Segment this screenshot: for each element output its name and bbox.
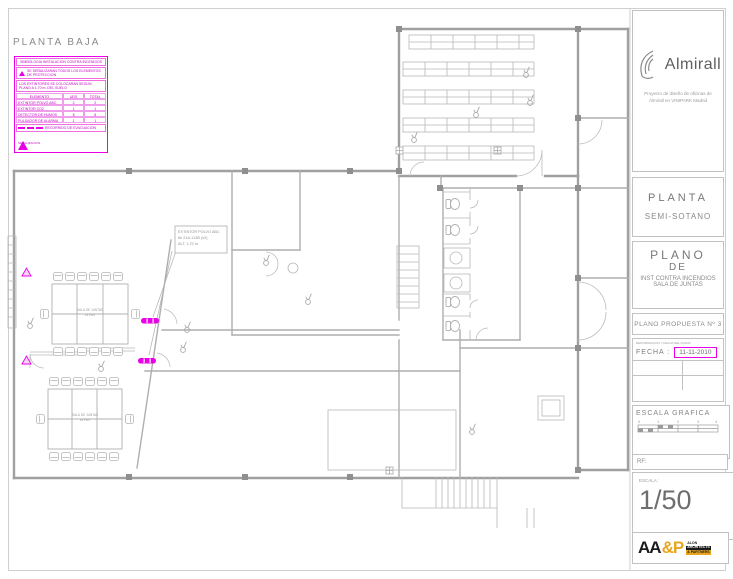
archive-shelving [403,35,534,160]
fecha-value: 11-11-2010 [674,347,716,358]
legend-table: ELEMENTO UDS TOTAL EXTINTOR POLVO ABC 2 … [16,93,106,123]
evacuation-route-row: RECORRIDO DE EVACUACION [16,124,106,132]
callout-line-1: EXTINTOR POLVO ABC [178,230,220,234]
callout-line-3: ALT. 1,70 m [178,242,198,246]
floorplan-drawing: SALA DE JUNTAS 14 PAX SALA DE JUNTAS 14 … [0,0,733,579]
brand-name: Almirall [665,56,721,74]
brand-tagline-1: Proyecto de diseño de oficinas de [633,91,723,98]
drawing-sheet: SALA DE JUNTAS 14 PAX SALA DE JUNTAS 14 … [0,0,733,579]
rf-box: RF: [632,454,728,470]
proposal-box: PLANO PROPUESTA Nº 3 [632,313,724,335]
scale-value: 1/50 [639,485,729,516]
legend-signal-area: SEÑALIZACION [15,133,107,149]
conference-table-1: SALA DE JUNTAS 14 PAX [41,273,140,356]
svg-text:4: 4 [715,419,718,424]
brand-tagline-2: Almirall en VINIPARK Madrid [633,98,723,105]
fecha-label: FECHA : [636,349,670,356]
evac-dash-icon [18,127,25,129]
callout-line-2: 6e 21A-113B (x2) [178,236,208,240]
architecture-firm-logo: AA &P ALON ARCHITECTS & PARTNERS [632,532,729,564]
plano-box: PLANO DE INST CONTRA INCENDIOS SALA DE J… [632,241,724,309]
graphic-scale-label: ESCALA GRAFICA [636,410,726,417]
evac-dash-icon [36,127,43,129]
planta-box: PLANTA SEMI-SOTANO [632,177,724,237]
planta-line2: SEMI-SOTANO [633,212,723,221]
legend-title: SIMBOLOGIA INSTALACION CONTRA INCENDIOS [16,58,106,66]
svg-text:1: 1 [657,419,660,424]
alarm-triangle-markers [22,268,31,364]
table2-sub: 14 PAX [80,418,91,422]
warning-triangle-icon [19,71,25,76]
planta-line1: PLANTA [633,192,723,204]
plano-line2: DE [633,262,723,273]
conference-table-2: SALA DE JUNTAS 14 PAX [37,378,134,461]
firm-logo-p: &P [662,538,684,558]
plano-line4: SALA DE JUNTAS [633,282,723,288]
firm-name-line3: & PARTNERS [686,550,711,555]
svg-text:2: 2 [677,419,680,424]
evac-dash-icon [27,127,34,129]
title-block: Almirall Proyecto de diseño de oficinas … [630,8,726,571]
fecha-grid [633,360,723,390]
table1-sub: 14 PAX [85,313,96,317]
firm-logo-aa: AA [638,538,661,558]
brand-box: Almirall Proyecto de diseño de oficinas … [632,10,724,172]
svg-text:0: 0 [638,419,641,424]
signal-caption: SEÑALIZACION [18,142,104,145]
legend-box: SIMBOLOGIA INSTALACION CONTRA INCENDIOS … [14,56,108,153]
table1-label: SALA DE JUNTAS [77,308,103,312]
svg-text:3: 3 [697,419,700,424]
graphic-scale-box: ESCALA GRAFICA 0 1 2 3 4 [632,405,730,459]
restrooms [443,188,478,340]
legend-warning-text: SE SEÑALIZARAN TODOS LOS ELEMENTOS DE PR… [27,69,103,77]
graphic-scale-bar: 0 1 2 3 4 [636,417,720,437]
fecha-box: DENOMINACION Y FECHA DEL PLANO FECHA : 1… [632,338,724,402]
legend-note-text: LOS EXTINTORES SE COLOCARAN SEGUN PLANO … [16,80,106,92]
scale-label: ESCALA : [639,478,729,483]
service-shaft [288,263,564,470]
plano-line1: PLANO [633,248,723,262]
sheet-title: PLANTA BAJA [13,37,100,48]
table2-label: SALA DE JUNTAS [72,413,98,417]
extinguisher-callout: EXTINTOR POLVO ABC 6e 21A-113B (x2) ALT.… [149,226,227,355]
almirall-leaf-icon [635,49,661,81]
scale-box: ESCALA : 1/50 [632,472,733,540]
